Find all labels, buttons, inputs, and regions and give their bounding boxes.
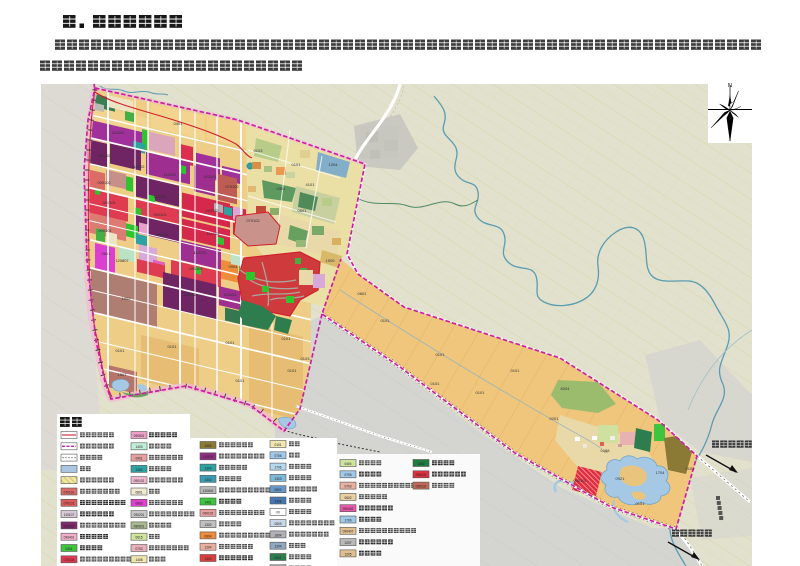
svg-text:090102: 090102 <box>97 180 111 185</box>
svg-text:090102: 090102 <box>416 485 427 489</box>
svg-text:110101: 110101 <box>163 172 177 177</box>
svg-text:0101: 0101 <box>436 352 446 357</box>
svg-text:0101: 0101 <box>288 368 298 373</box>
svg-text:0101: 0101 <box>226 340 236 345</box>
svg-text:1706: 1706 <box>274 466 281 470</box>
svg-text:0101: 0101 <box>476 390 486 395</box>
svg-text:110102: 110102 <box>206 231 220 236</box>
svg-text:090102: 090102 <box>134 479 145 483</box>
svg-text:080601: 080601 <box>134 524 145 528</box>
svg-text:8204: 8204 <box>561 386 571 391</box>
svg-text:090101: 090101 <box>155 232 169 237</box>
svg-text:0201: 0201 <box>550 416 560 421</box>
svg-text:0921: 0921 <box>616 476 626 481</box>
svg-text:0401: 0401 <box>174 121 184 126</box>
svg-text:4101: 4101 <box>306 182 316 187</box>
svg-text:110102: 110102 <box>153 194 167 199</box>
svg-text:0301: 0301 <box>274 556 281 560</box>
svg-text:0103: 0103 <box>254 148 264 153</box>
svg-text:0101: 0101 <box>282 336 292 341</box>
svg-text:0801: 0801 <box>358 291 368 296</box>
svg-text:1205: 1205 <box>344 552 351 556</box>
svg-text:0301: 0301 <box>277 186 287 191</box>
svg-text:110101: 110101 <box>203 174 217 179</box>
svg-text:120602: 120602 <box>203 489 214 493</box>
svg-text:110101: 110101 <box>223 292 237 297</box>
svg-text:0801: 0801 <box>135 490 142 494</box>
svg-text:090101: 090101 <box>98 228 112 233</box>
svg-text:0101: 0101 <box>686 466 696 471</box>
svg-text:070101: 070101 <box>64 490 75 494</box>
svg-text:090401: 090401 <box>64 536 75 540</box>
svg-text:090601: 090601 <box>134 434 145 438</box>
svg-text:0802: 0802 <box>135 502 142 506</box>
svg-text:110103: 110103 <box>203 455 214 459</box>
svg-text:1401: 1401 <box>204 500 211 504</box>
svg-text:090201: 090201 <box>134 513 145 517</box>
svg-text:1002: 1002 <box>204 444 211 448</box>
svg-text:0103: 0103 <box>301 356 311 361</box>
svg-text:0706: 0706 <box>344 473 351 477</box>
svg-text:0706: 0706 <box>274 454 281 458</box>
svg-text:0615: 0615 <box>135 536 142 540</box>
svg-text:070101: 070101 <box>64 502 75 506</box>
svg-text:110102: 110102 <box>131 164 145 169</box>
svg-text:090407: 090407 <box>343 530 354 534</box>
svg-text:090101: 090101 <box>573 478 587 483</box>
svg-text:0101: 0101 <box>636 501 646 506</box>
svg-text:120807: 120807 <box>115 258 129 263</box>
svg-text:0101: 0101 <box>168 344 178 349</box>
svg-text:1507: 1507 <box>118 372 128 377</box>
svg-text:110101: 110101 <box>193 250 207 255</box>
svg-text:00: 00 <box>276 511 280 515</box>
svg-text:0901: 0901 <box>135 457 142 461</box>
svg-text:1402: 1402 <box>417 462 424 466</box>
svg-text:110101: 110101 <box>111 130 125 135</box>
svg-text:1403: 1403 <box>135 445 142 449</box>
svg-text:1704: 1704 <box>656 470 666 475</box>
svg-text:1204: 1204 <box>274 545 281 549</box>
svg-text:0809: 0809 <box>274 522 281 526</box>
svg-text:1706: 1706 <box>344 518 351 522</box>
svg-text:1303: 1303 <box>274 477 281 481</box>
svg-text:090402: 090402 <box>343 507 354 511</box>
svg-text:1207: 1207 <box>344 541 351 545</box>
svg-text:0101: 0101 <box>292 162 302 167</box>
svg-text:110102: 110102 <box>64 524 75 528</box>
svg-text:0703: 0703 <box>135 547 142 551</box>
svg-text:0101: 0101 <box>381 318 391 323</box>
svg-text:090101: 090101 <box>189 266 203 271</box>
svg-text:070102: 070102 <box>246 218 260 223</box>
svg-text:110102: 110102 <box>205 208 219 213</box>
svg-text:090101: 090101 <box>153 212 167 217</box>
svg-text:090101: 090101 <box>416 473 427 477</box>
svg-text:1204: 1204 <box>329 162 339 167</box>
svg-text:1304: 1304 <box>204 467 211 471</box>
svg-text:0101: 0101 <box>116 348 126 353</box>
svg-text:070102: 070102 <box>64 558 75 562</box>
svg-text:0904: 0904 <box>204 534 211 538</box>
svg-text:110107: 110107 <box>64 513 75 517</box>
svg-text:0800: 0800 <box>274 488 281 492</box>
svg-text:110102: 110102 <box>183 292 197 297</box>
svg-text:1302: 1302 <box>204 523 211 527</box>
svg-text:1002: 1002 <box>122 296 132 301</box>
svg-text:090102: 090102 <box>203 512 214 516</box>
svg-text:0404: 0404 <box>344 462 351 466</box>
svg-text:1408: 1408 <box>135 558 142 562</box>
svg-text:090101: 090101 <box>102 200 116 205</box>
svg-text:1302: 1302 <box>135 468 142 472</box>
svg-text:1509: 1509 <box>326 258 336 263</box>
svg-text:0101: 0101 <box>274 443 281 447</box>
svg-text:0703: 0703 <box>344 485 351 489</box>
svg-text:0101: 0101 <box>236 378 246 383</box>
svg-text:0904: 0904 <box>229 264 239 269</box>
svg-text:0103: 0103 <box>601 448 611 453</box>
svg-text:N: N <box>728 83 732 89</box>
svg-text:1804: 1804 <box>274 533 281 537</box>
svg-text:1302: 1302 <box>204 478 211 482</box>
svg-text:0601: 0601 <box>102 251 112 256</box>
svg-text:1308: 1308 <box>274 499 281 503</box>
svg-text:0101: 0101 <box>511 368 521 373</box>
svg-text:0601: 0601 <box>298 208 308 213</box>
svg-text:1204: 1204 <box>204 546 211 550</box>
svg-text:070102: 070102 <box>225 184 239 189</box>
svg-text:110102: 110102 <box>97 153 111 158</box>
svg-text:0301: 0301 <box>65 547 72 551</box>
svg-text:0101: 0101 <box>431 381 441 386</box>
svg-text:1302: 1302 <box>204 557 211 561</box>
svg-text:0602: 0602 <box>344 496 351 500</box>
